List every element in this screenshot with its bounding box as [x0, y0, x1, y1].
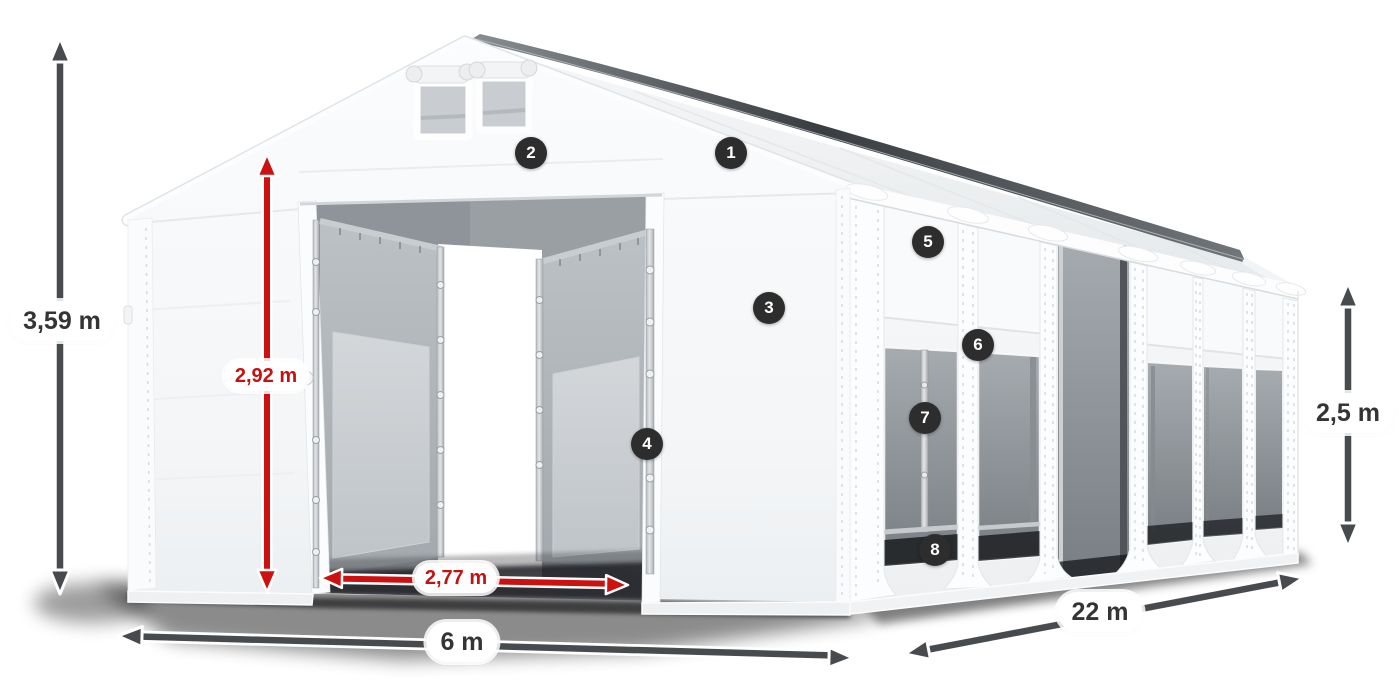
tent-dimension-diagram: 3,59 m 2,92 m 2,77 m 6 m 22 m 2,5 m 1 2 …: [0, 0, 1400, 700]
callout-2: 2: [515, 137, 547, 169]
gable-vent-left: [406, 64, 475, 137]
tent-illustration: [0, 0, 1400, 700]
side-entrance-open: [1057, 240, 1130, 580]
front-skirt-left: [128, 591, 313, 605]
side-door-opening-2: [978, 352, 1040, 561]
entrance-height-label: 2,92 m: [225, 361, 307, 391]
door-frame-pole: [646, 229, 654, 574]
callout-6: 6: [962, 329, 994, 361]
entrance-opening: [300, 194, 662, 601]
total-height-label: 3,59 m: [9, 301, 115, 341]
door-pole: [1120, 252, 1127, 570]
gable-vent-right: [469, 60, 537, 130]
callout-7: 7: [909, 402, 941, 434]
callout-8: 8: [919, 534, 951, 566]
callout-3: 3: [753, 292, 785, 324]
side-window-5: [1255, 369, 1283, 530]
callout-5: 5: [912, 226, 944, 258]
inner-door-right: [536, 231, 652, 573]
callout-4: 4: [631, 428, 663, 460]
side-height-label: 2,5 m: [1302, 393, 1394, 433]
front-skirt-right: [642, 602, 850, 615]
side-window-3: [1147, 362, 1193, 545]
entrance-width-label: 2,77 m: [415, 563, 497, 593]
interior-pole: [921, 350, 928, 532]
side-window-4: [1203, 366, 1243, 537]
width-label: 6 m: [426, 622, 497, 662]
callout-1: 1: [715, 137, 747, 169]
side-door-opening-1: [884, 347, 958, 566]
length-label: 22 m: [1058, 592, 1143, 632]
open-passage: [438, 244, 542, 578]
inner-door-left: [320, 221, 444, 576]
